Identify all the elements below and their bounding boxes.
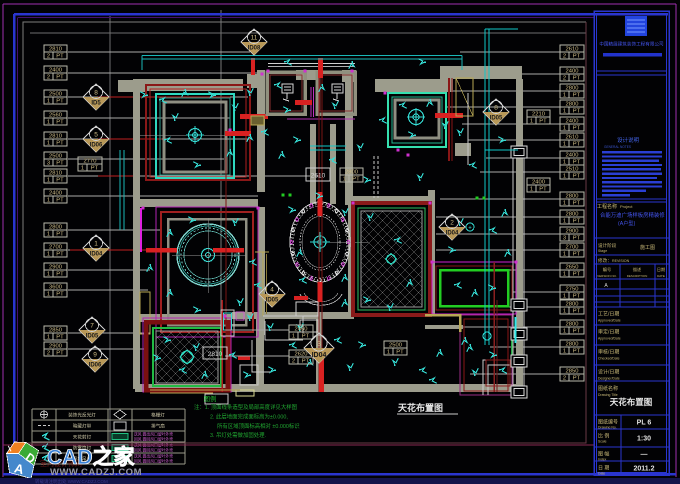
svg-text:2770: 2770 [84,159,97,165]
svg-text:1: 1 [530,187,533,193]
svg-text:3: 3 [47,161,50,167]
svg-text:2400: 2400 [49,68,62,74]
svg-text:2800: 2800 [345,170,358,176]
svg-text:2610: 2610 [311,173,326,180]
svg-text:2800: 2800 [566,302,579,308]
svg-text:注：1. 顶面线条造型及局部高度详见大样图: 注：1. 顶面线条造型及局部高度详见大样图 [194,403,297,411]
svg-text:PT: PT [56,178,64,184]
svg-text:CAD之家: CAD之家 [47,445,135,469]
svg-text:PT: PT [573,174,581,180]
svg-text:2: 2 [563,54,566,60]
svg-text:PT: PT [573,142,581,148]
svg-text:2500: 2500 [389,343,402,349]
svg-text:工程名称: 工程名称 [597,203,617,210]
svg-text:1: 1 [343,177,346,183]
svg-text:1: 1 [47,252,50,258]
svg-text:2: 2 [292,359,295,365]
svg-text:PT: PT [56,351,64,357]
svg-text:ID06: ID06 [89,363,102,369]
svg-text:ID05: ID05 [86,334,99,340]
svg-text:8: 8 [494,105,498,112]
svg-text:1: 1 [81,166,84,172]
svg-text:2650: 2650 [566,265,579,271]
svg-text:PT: PT [56,75,64,81]
svg-text:2. 此层地面完成面标高为±0.000,: 2. 此层地面完成面标高为±0.000, [210,413,288,421]
svg-text:1: 1 [47,141,50,147]
svg-text:审定/日期: 审定/日期 [598,329,619,336]
svg-text:4: 4 [270,287,274,294]
svg-text:2810: 2810 [49,134,62,140]
svg-text:1: 1 [47,232,50,238]
svg-text:2900: 2900 [49,265,62,271]
svg-text:2610: 2610 [566,135,579,141]
svg-text:1: 1 [47,272,50,278]
svg-text:1: 1 [563,201,566,207]
svg-text:VERSION NO.: VERSION NO. [597,274,617,278]
svg-text:回风 圆回风口留叶外壳: 回风 圆回风口留叶外壳 [134,448,173,453]
svg-text:PT: PT [573,252,581,258]
svg-text:PT: PT [302,359,310,365]
svg-text:2800: 2800 [566,322,579,328]
svg-text:1: 1 [563,109,566,115]
svg-text:Approved/Date: Approved/Date [598,337,621,341]
svg-text:DATE: DATE [657,274,665,278]
svg-text:Project: Project [620,204,633,209]
svg-text:2810: 2810 [208,351,223,358]
svg-text:中国精展建筑装饰工程有限公司: 中国精展建筑装饰工程有限公司 [599,41,664,48]
svg-text:Checked/Date: Checked/Date [598,357,620,361]
svg-text:转载请注明出处 WWW.CADZJ.COM: 转载请注明出处 WWW.CADZJ.COM [35,478,108,484]
svg-text:编号: 编号 [603,266,611,273]
svg-text:1: 1 [563,142,566,148]
svg-text:2850: 2850 [566,369,579,375]
svg-text:设计/日期: 设计/日期 [598,369,619,376]
svg-text:PT: PT [56,120,64,126]
svg-text:PT: PT [539,119,547,125]
svg-text:2900: 2900 [49,344,62,350]
svg-text:—: — [641,452,648,459]
svg-text:PT: PT [56,335,64,341]
svg-text:排气扇: 排气扇 [151,422,165,429]
svg-text:2560: 2560 [49,113,62,119]
svg-text:2: 2 [450,220,454,227]
svg-text:2210: 2210 [532,112,545,118]
svg-text:2800: 2800 [566,342,579,348]
svg-text:1: 1 [563,294,566,300]
svg-text:PT: PT [56,252,64,258]
svg-text:PT: PT [56,141,64,147]
svg-text:描述: 描述 [633,266,642,273]
svg-text:1: 1 [47,178,50,184]
svg-text:合能万迪广场样板房精装修: 合能万迪广场样板房精装修 [600,211,665,219]
svg-text:+: + [468,226,472,232]
svg-text:回风 圆回风口留叶外壳: 回风 圆回风口留叶外壳 [134,459,173,464]
svg-text:ID04: ID04 [90,252,103,258]
svg-text:比 例: 比 例 [598,433,609,440]
svg-text:2800: 2800 [566,86,579,92]
svg-text:2011.2: 2011.2 [633,466,654,473]
svg-text:PT: PT [352,177,360,183]
svg-text:REVISION: REVISION [612,259,630,263]
svg-text:PT: PT [573,376,581,382]
svg-text:2400: 2400 [566,153,579,159]
svg-text:1: 1 [563,349,566,355]
svg-text:天花布置图: 天花布置图 [610,397,653,407]
svg-text:PT: PT [573,329,581,335]
svg-text:PT: PT [573,309,581,315]
svg-text:2: 2 [47,351,50,357]
svg-text:PT: PT [56,292,64,298]
svg-text:PT: PT [56,198,64,204]
svg-text:2500: 2500 [49,154,62,160]
svg-text:Designer/Date: Designer/Date [598,377,620,381]
svg-text:ID04: ID04 [312,352,327,359]
svg-text:ID04: ID04 [446,231,459,237]
svg-text:装饰光反光灯: 装饰光反光灯 [68,411,96,418]
svg-text:8: 8 [94,90,98,97]
svg-text:2500: 2500 [49,92,62,98]
svg-text:送风 圆出风口留叶外壳: 送风 圆出风口留叶外壳 [134,454,173,459]
svg-text:1: 1 [292,334,295,340]
svg-text:1: 1 [563,219,566,225]
svg-text:ID05: ID05 [490,116,503,122]
svg-text:PT: PT [573,219,581,225]
svg-text:2: 2 [563,76,566,82]
svg-text:PT: PT [573,126,581,132]
svg-text:2900: 2900 [566,229,579,235]
svg-text:2800: 2800 [49,225,62,231]
svg-text:2700: 2700 [49,245,62,251]
svg-text:PT: PT [302,334,310,340]
svg-text:2800: 2800 [566,212,579,218]
svg-text:修改：: 修改： [598,257,612,264]
svg-text:2750: 2750 [566,287,579,293]
svg-text:9: 9 [93,352,97,359]
svg-text:ID06: ID06 [90,143,103,149]
svg-text:PT: PT [573,109,581,115]
svg-text:2: 2 [47,75,50,81]
svg-text:1: 1 [530,119,533,125]
svg-text:2810: 2810 [49,47,62,53]
svg-text:工艺/日期: 工艺/日期 [598,312,619,318]
svg-text:PL 6: PL 6 [637,420,652,427]
svg-text:2510: 2510 [566,167,579,173]
svg-text:PT: PT [56,99,64,105]
svg-text:1:30: 1:30 [637,436,651,443]
svg-text:PT: PT [91,166,99,172]
svg-text:1: 1 [563,93,566,99]
svg-text:1: 1 [563,309,566,315]
svg-text:PT: PT [56,232,64,238]
svg-text:图纸名称: 图纸名称 [598,385,618,392]
svg-text:1: 1 [47,198,50,204]
svg-text:1: 1 [47,99,50,105]
svg-text:1: 1 [47,335,50,341]
svg-text:1: 1 [387,350,390,356]
svg-text:图例: 图例 [204,394,217,403]
svg-text:7: 7 [90,323,94,330]
svg-text:PT: PT [539,187,547,193]
svg-text:PT: PT [573,236,581,242]
svg-text:ID5: ID5 [91,101,101,107]
svg-text:ID08: ID08 [248,46,261,52]
svg-text:施工图: 施工图 [640,244,655,251]
svg-text:2620: 2620 [295,352,308,358]
svg-text:PT: PT [56,54,64,60]
svg-text:3: 3 [563,236,566,242]
svg-text:2400: 2400 [566,69,579,75]
svg-text:审核/日期: 审核/日期 [598,349,619,356]
svg-text:PT: PT [573,294,581,300]
svg-text:DESCRIPTION: DESCRIPTION [627,274,648,278]
svg-text:PT: PT [573,349,581,355]
svg-text:1: 1 [47,120,50,126]
svg-text:3600: 3600 [49,285,62,291]
svg-text:2850: 2850 [49,328,62,334]
svg-text:WWW.CADZJ.COM: WWW.CADZJ.COM [50,467,142,478]
svg-text:2400: 2400 [566,119,579,125]
svg-text:1: 1 [563,174,566,180]
svg-text:PT: PT [573,93,581,99]
svg-text:3. 吊灯处需做加固处理.: 3. 吊灯处需做加固处理. [210,431,266,439]
svg-text:图纸编号: 图纸编号 [598,419,618,426]
svg-text:PT: PT [56,272,64,278]
svg-text:5: 5 [94,132,98,139]
svg-text:格栅灯: 格栅灯 [151,411,165,418]
svg-text:图 幅: 图 幅 [598,451,609,458]
svg-text:ID05: ID05 [266,298,279,304]
svg-text:设计说明: 设计说明 [617,136,640,144]
svg-text:2800: 2800 [566,102,579,108]
svg-text:1: 1 [563,329,566,335]
svg-text:GENERAL NOTES: GENERAL NOTES [604,145,631,149]
svg-text:设计阶段: 设计阶段 [598,242,617,249]
svg-text:(A户型): (A户型) [618,219,636,227]
svg-text:1: 1 [94,241,98,248]
svg-text:1: 1 [563,252,566,258]
svg-text:2: 2 [563,376,566,382]
svg-text:暗藏灯带: 暗藏灯带 [73,422,92,429]
svg-text:PT: PT [573,201,581,207]
svg-text:送风 圆出风口留叶外壳: 送风 圆出风口留叶外壳 [134,432,173,437]
svg-text:2800: 2800 [566,194,579,200]
svg-text:PT: PT [396,350,404,356]
svg-text:2610: 2610 [566,47,579,53]
svg-text:PT: PT [573,54,581,60]
svg-text:PT: PT [573,76,581,82]
svg-text:回风 圆回风口留叶外壳: 回风 圆回风口留叶外壳 [134,437,173,442]
svg-text:3: 3 [317,339,321,348]
svg-text:Approved/Date: Approved/Date [598,319,621,323]
svg-text:2450: 2450 [295,327,308,333]
svg-text:1: 1 [563,272,566,278]
svg-text:1: 1 [47,292,50,298]
svg-text:11: 11 [251,35,258,42]
svg-text:PT: PT [573,272,581,278]
svg-text:2400: 2400 [532,180,545,186]
svg-text:Scale: Scale [598,440,607,444]
svg-text:天花布置图: 天花布置图 [398,402,443,413]
svg-text:2: 2 [47,54,50,60]
svg-text:天花射灯: 天花射灯 [73,433,92,440]
svg-text:2700: 2700 [566,245,579,251]
svg-text:2810: 2810 [49,171,62,177]
svg-text:Stage: Stage [598,249,607,253]
svg-text:所有区域顶面标高相对 ±0.000标识: 所有区域顶面标高相对 ±0.000标识 [217,422,300,430]
svg-text:PT: PT [56,161,64,167]
svg-text:1: 1 [563,126,566,132]
svg-text:2400: 2400 [49,191,62,197]
